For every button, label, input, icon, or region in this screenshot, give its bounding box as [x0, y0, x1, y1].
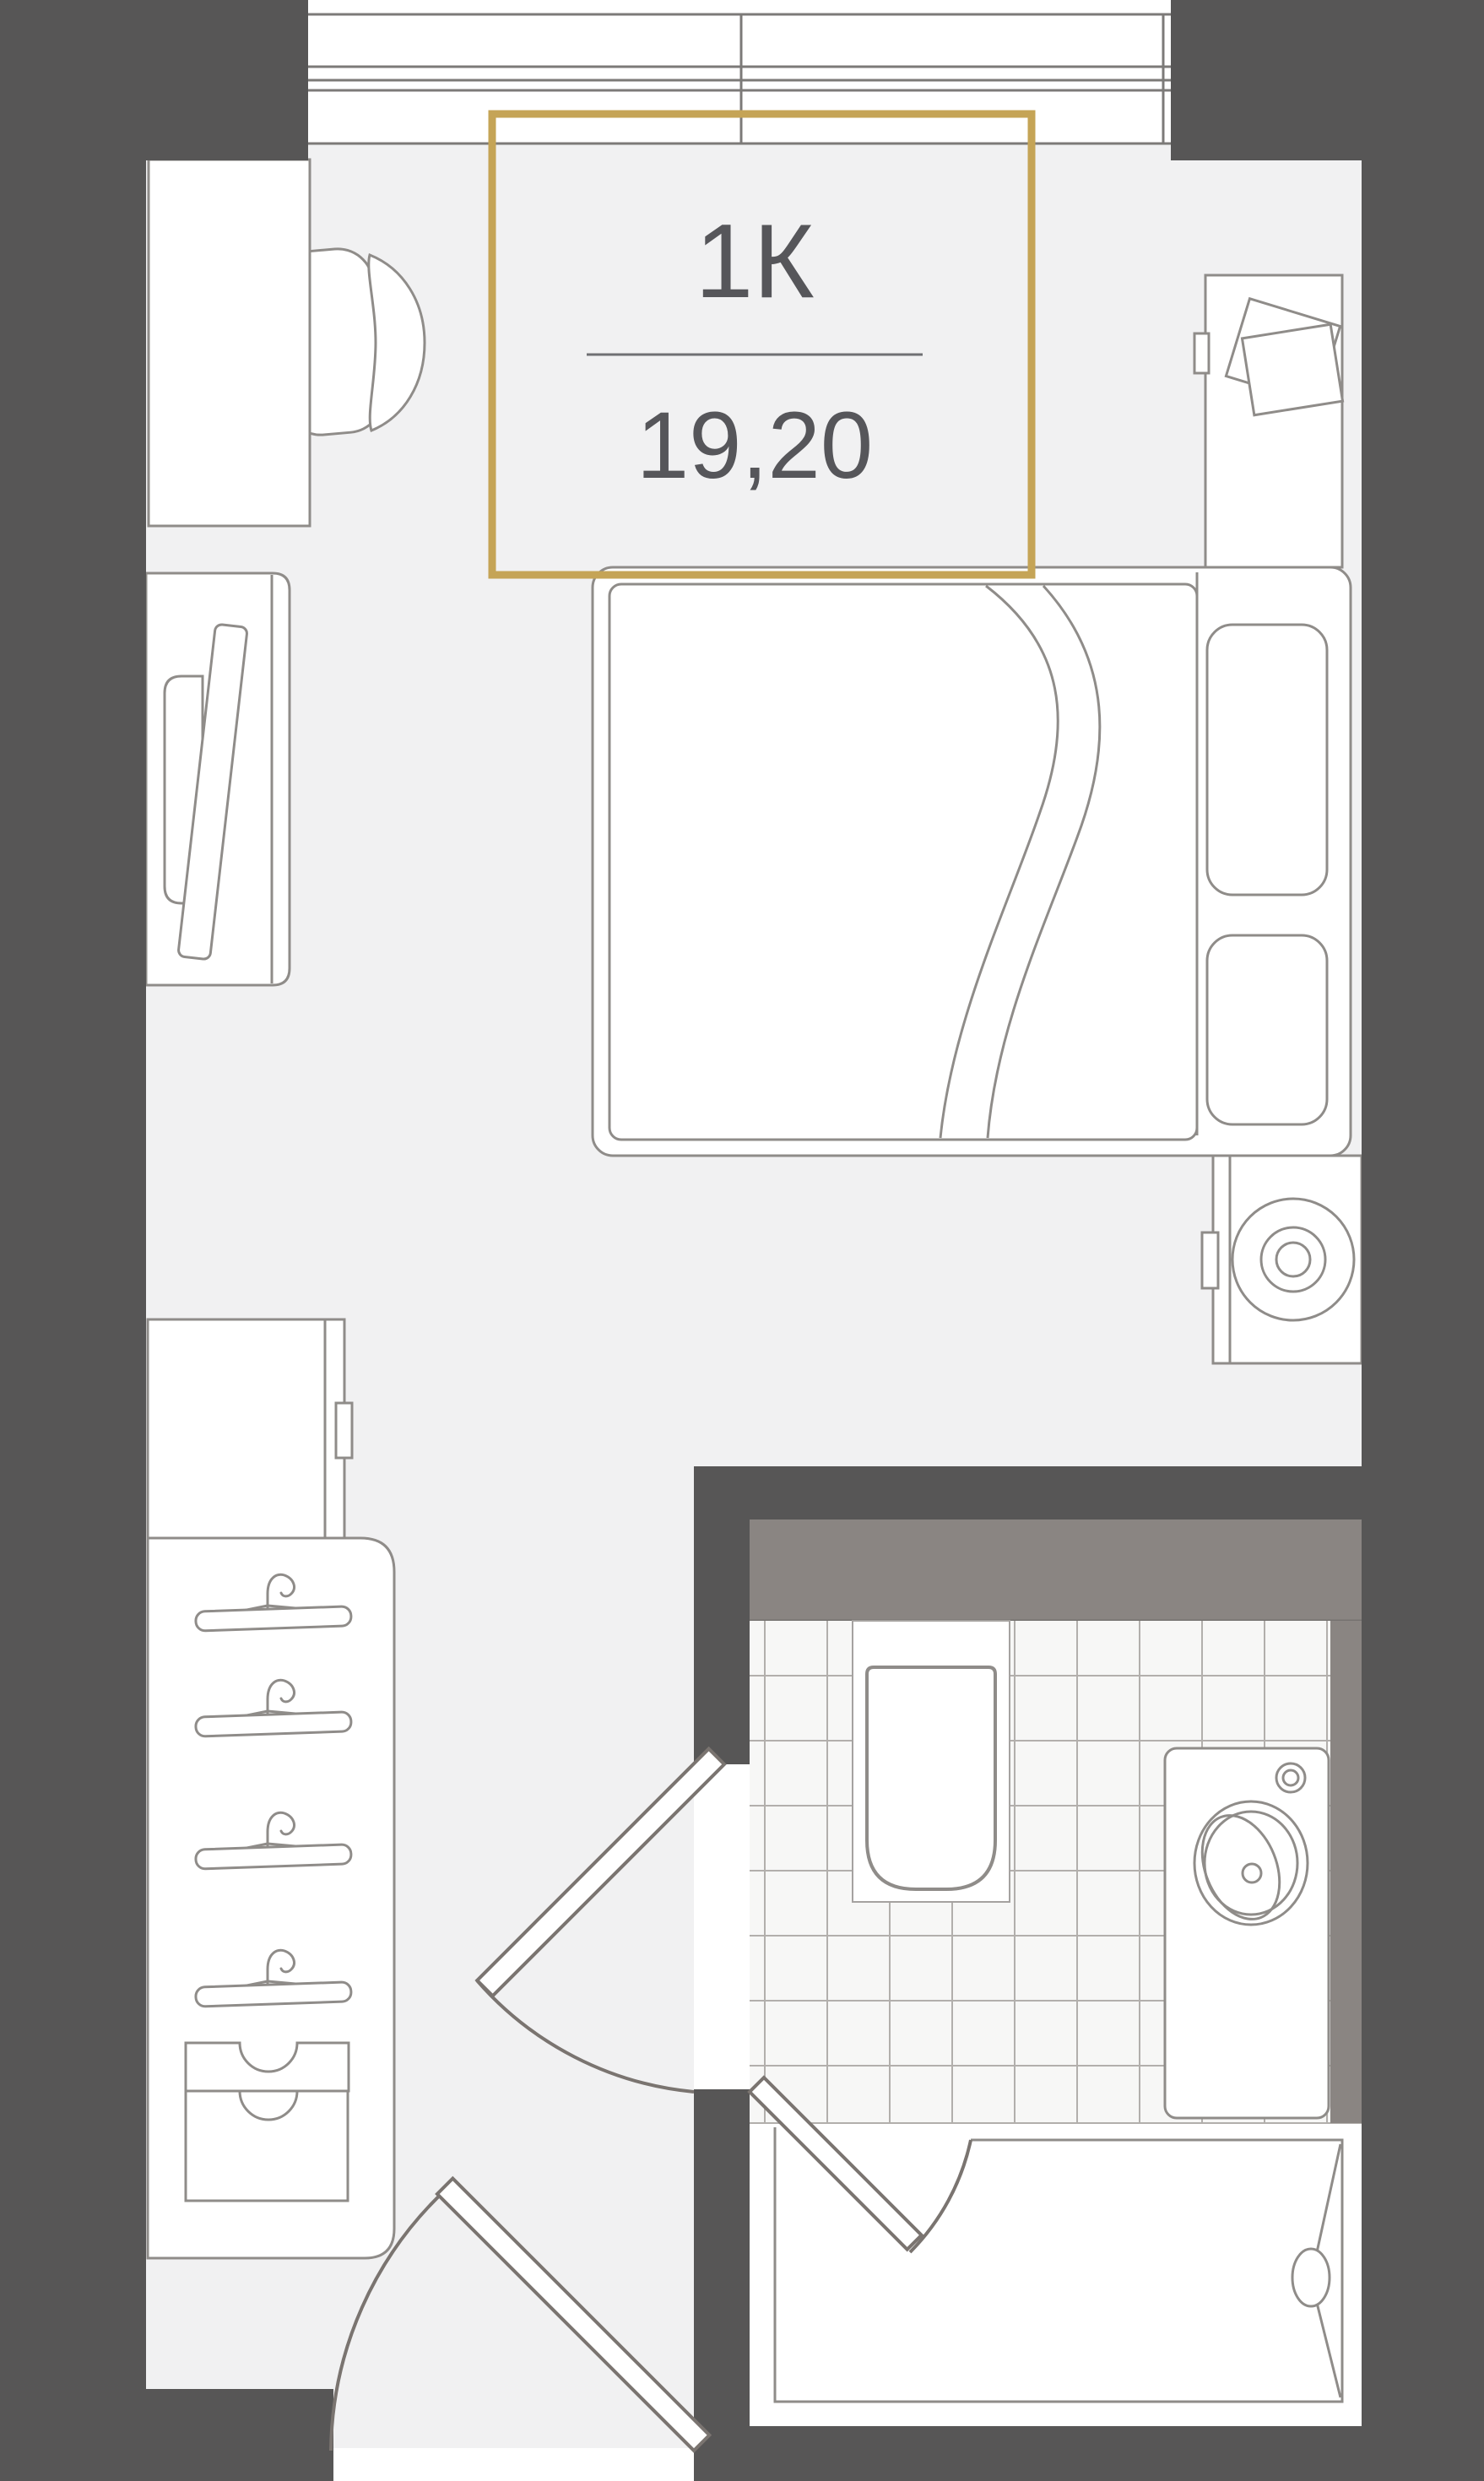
toilet-icon — [853, 1621, 1010, 1902]
floorplan-page: 1К 19,20 — [0, 0, 1484, 2481]
window-icon — [308, 14, 1171, 144]
washing-machine-icon — [1202, 1156, 1362, 1363]
book-icon — [1242, 324, 1342, 414]
bathroom-wall-stub-upper — [694, 1519, 750, 1764]
pillow-icon — [1207, 935, 1327, 1124]
desk-icon — [149, 160, 310, 526]
nightstand-icon — [1194, 275, 1343, 567]
double-bed-icon — [593, 567, 1351, 1156]
tv-panel-icon — [146, 573, 290, 985]
unit-type-label: 1К — [695, 203, 814, 320]
floorplan-svg: 1К 19,20 — [0, 0, 1484, 2481]
wet-wall-band — [750, 1519, 1362, 1621]
bathroom — [750, 1519, 1362, 2402]
unit-area-label: 19,20 — [636, 393, 873, 498]
bathtub-icon — [775, 2127, 1342, 2402]
sink-vanity-icon — [1165, 1748, 1329, 2118]
wardrobe-icon — [148, 1538, 394, 2258]
tall-cabinet-icon — [148, 1319, 352, 1538]
pillow-icon — [1207, 625, 1327, 895]
bathroom-wall-stub-lower — [694, 2089, 750, 2481]
bathroom-wall-top — [694, 1466, 1362, 1519]
wet-wall-strip — [1330, 1621, 1362, 2123]
bathroom-wall-bottom — [694, 2426, 1362, 2481]
